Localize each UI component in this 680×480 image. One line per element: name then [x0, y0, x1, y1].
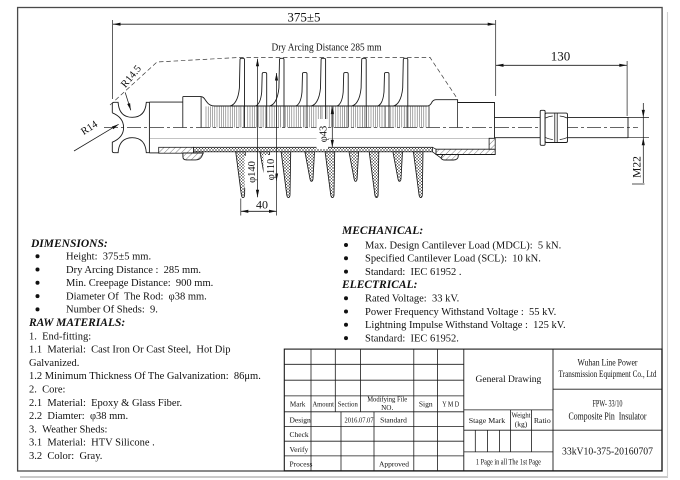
svg-text:Ratio: Ratio [534, 416, 551, 425]
svg-text:2016.07.07: 2016.07.07 [345, 416, 374, 425]
svg-text:3. Weather Sheds:: 3. Weather Sheds: [29, 424, 108, 435]
svg-text:Specified Cantilever Load (SCL: Specified Cantilever Load (SCL): 10 kN. [365, 254, 541, 265]
svg-text:Process: Process [290, 460, 313, 469]
svg-text:1 Page in all The 1st Page: 1 Page in all The 1st Page [476, 458, 541, 467]
svg-text:M22: M22 [632, 156, 644, 178]
svg-text:Mark: Mark [290, 400, 306, 409]
svg-text:Section: Section [338, 400, 358, 409]
svg-text:General Drawing: General Drawing [476, 375, 542, 385]
svg-text:Dry Arcing Distance 285 mm: Dry Arcing Distance 285 mm [272, 43, 382, 54]
svg-text:Rated Voltage: 33 kV.: Rated Voltage: 33 kV. [365, 294, 459, 305]
svg-text:Standard: IEC 61952 .: Standard: IEC 61952 . [365, 267, 462, 278]
svg-text:(kg): (kg) [515, 420, 528, 429]
svg-text:3.2 Color: Gray.: 3.2 Color: Gray. [29, 451, 102, 462]
svg-text:Weight: Weight [512, 411, 532, 420]
svg-text:130: 130 [551, 49, 571, 64]
svg-text:Transmission Equipment Co., Lt: Transmission Equipment Co., Ltd [559, 369, 657, 379]
svg-text:FPW- 33/10: FPW- 33/10 [593, 400, 623, 410]
svg-text:φ110: φ110 [266, 159, 277, 180]
svg-text:Design: Design [290, 416, 311, 425]
svg-text:Height: 375±5 mm.: Height: 375±5 mm. [66, 252, 151, 263]
svg-text:R14: R14 [79, 119, 100, 138]
svg-text:3.1 Material: HTV Silicone .: 3.1 Material: HTV Silicone . [29, 438, 155, 449]
svg-text:Galvanized.: Galvanized. [29, 358, 79, 369]
svg-text:Modifying File: Modifying File [367, 396, 407, 404]
svg-text:Verify: Verify [290, 445, 309, 454]
svg-text:375±5: 375±5 [287, 10, 320, 25]
svg-text:1.1 Material: Cast Iron Or C: 1.1 Material: Cast Iron Or Cast Steel, H… [29, 345, 231, 356]
svg-text:Y M D: Y M D [442, 400, 459, 409]
svg-text:MECHANICAL:: MECHANICAL: [341, 225, 423, 237]
svg-text:Lightning Impulse Withstand Vo: Lightning Impulse Withstand Voltage : 12… [365, 320, 566, 331]
svg-text:Sign: Sign [419, 400, 433, 409]
svg-text:Approved: Approved [379, 460, 409, 469]
svg-text:2.1 Material: Epoxy & Glass: 2.1 Material: Epoxy & Glass Fiber. [29, 398, 182, 409]
svg-text:φ43: φ43 [319, 126, 330, 143]
svg-text:2.2 Diamter: φ38 mm.: 2.2 Diamter: φ38 mm. [29, 411, 128, 422]
svg-text:1. End-fitting:: 1. End-fitting: [29, 331, 91, 342]
svg-text:Dry Arcing Distance : 285 mm.: Dry Arcing Distance : 285 mm. [66, 265, 201, 276]
svg-text:Number Of Sheds: 9.: Number Of Sheds: 9. [66, 305, 158, 316]
svg-text:40: 40 [256, 198, 268, 212]
svg-text:Stage Mark: Stage Mark [469, 416, 506, 425]
svg-text:2. Core:: 2. Core: [29, 385, 66, 396]
svg-text:NO.: NO. [381, 404, 393, 412]
svg-text:Standard: IEC 61952.: Standard: IEC 61952. [365, 333, 459, 344]
svg-text:φ140: φ140 [247, 161, 258, 183]
svg-text:Composite Pin Insulator: Composite Pin Insulator [569, 412, 648, 423]
svg-text:1.2 Minimum Thickness Of The G: 1.2 Minimum Thickness Of The Galvanizati… [29, 371, 261, 382]
svg-text:Amount: Amount [312, 400, 334, 409]
svg-text:Check: Check [290, 430, 309, 439]
svg-text:Min. Creepage Distance: 900 m: Min. Creepage Distance: 900 mm. [66, 278, 213, 289]
svg-text:DIMENSIONS:: DIMENSIONS: [30, 238, 108, 250]
svg-text:33kV10-375-20160707: 33kV10-375-20160707 [562, 446, 653, 458]
svg-text:Max. Design Cantilever Load (M: Max. Design Cantilever Load (MDCL): 5 kN… [365, 240, 561, 251]
svg-text:Diameter Of The Rod: φ38 mm.: Diameter Of The Rod: φ38 mm. [66, 291, 207, 302]
svg-text:ELECTRICAL:: ELECTRICAL: [341, 279, 418, 291]
svg-text:Standard: Standard [380, 416, 407, 425]
svg-text:RAW MATERIALS:: RAW MATERIALS: [28, 317, 125, 329]
svg-text:Wuhan Line Power: Wuhan Line Power [578, 358, 638, 368]
svg-text:Power Frequency Withstand Volt: Power Frequency Withstand Voltage : 55 k… [365, 307, 556, 318]
svg-text:R14.5: R14.5 [119, 64, 144, 91]
